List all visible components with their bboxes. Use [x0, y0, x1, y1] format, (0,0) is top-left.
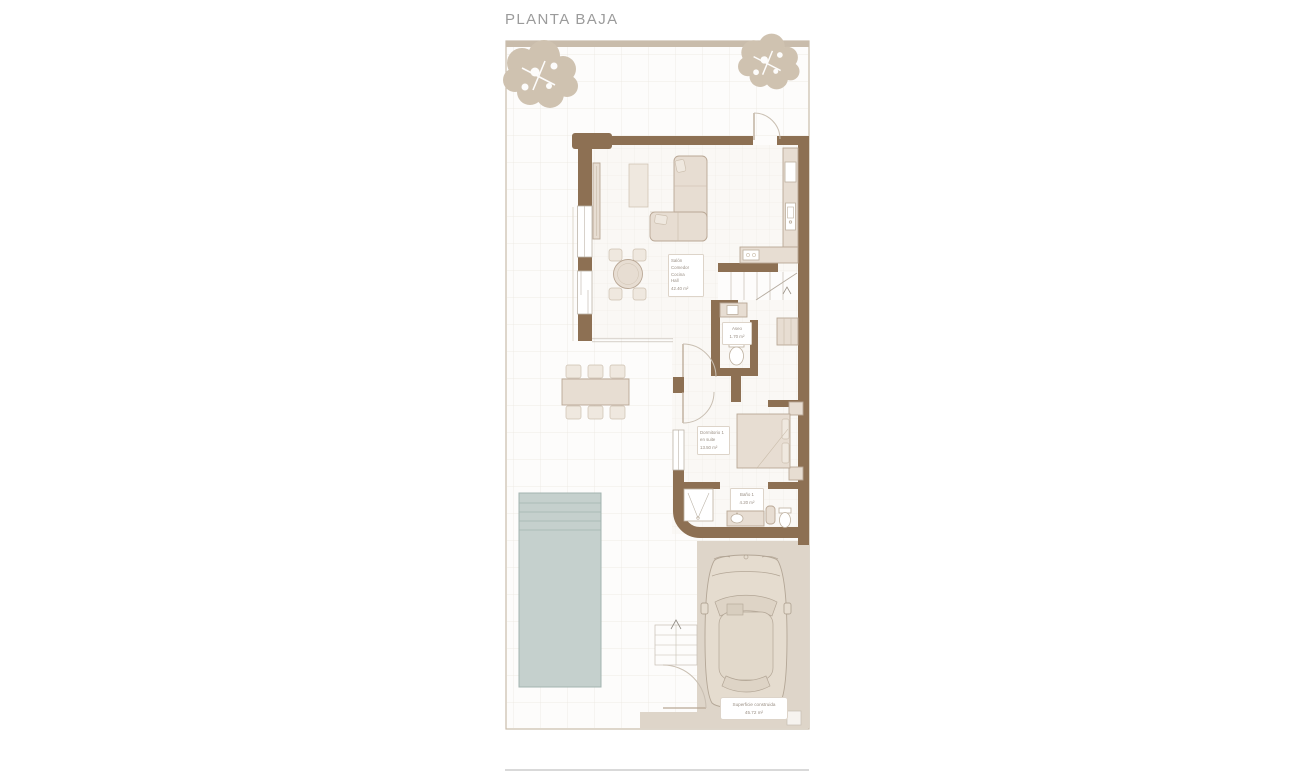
- room-label-area: 45.72 m²: [723, 709, 785, 716]
- staircase: [718, 272, 798, 300]
- floor-plan-drawing: [0, 0, 1315, 778]
- closet: [777, 318, 798, 345]
- floor-plan-page: PLANTA BAJA: [0, 0, 1315, 778]
- room-label-line: Dormitorio 1: [700, 430, 727, 437]
- built-area-label: Superficie construida 45.72 m²: [720, 697, 788, 720]
- car-top-view: [701, 555, 791, 709]
- room-label-line: Aseo: [725, 326, 749, 333]
- bottom-divider: [505, 769, 809, 771]
- pool: [519, 493, 601, 687]
- room-label-line: Cocina: [671, 272, 701, 279]
- room-label-line: Comedor: [671, 265, 701, 272]
- exterior-steps: [655, 620, 697, 665]
- room-label-area: 1.70 m²: [725, 334, 749, 341]
- room-label-line: Baño 1: [733, 492, 761, 499]
- room-label-line: Hall: [671, 278, 701, 285]
- room-label-line: Salón: [671, 258, 701, 265]
- terrace-table: [562, 365, 629, 419]
- room-label-line: Superficie construida: [723, 701, 785, 708]
- room-label-area: 42.40 m²: [671, 286, 701, 293]
- room-label-bath: Baño 1 4.20 m²: [730, 488, 764, 511]
- room-label-aseo: Aseo 1.70 m²: [722, 322, 752, 345]
- room-label-line: en suite: [700, 437, 727, 444]
- room-label-living: Salón Comedor Cocina Hall 42.40 m²: [668, 254, 704, 297]
- room-label-bedroom: Dormitorio 1 en suite 13.50 m²: [697, 426, 730, 455]
- room-label-area: 4.20 m²: [733, 500, 761, 507]
- room-label-area: 13.50 m²: [700, 445, 727, 452]
